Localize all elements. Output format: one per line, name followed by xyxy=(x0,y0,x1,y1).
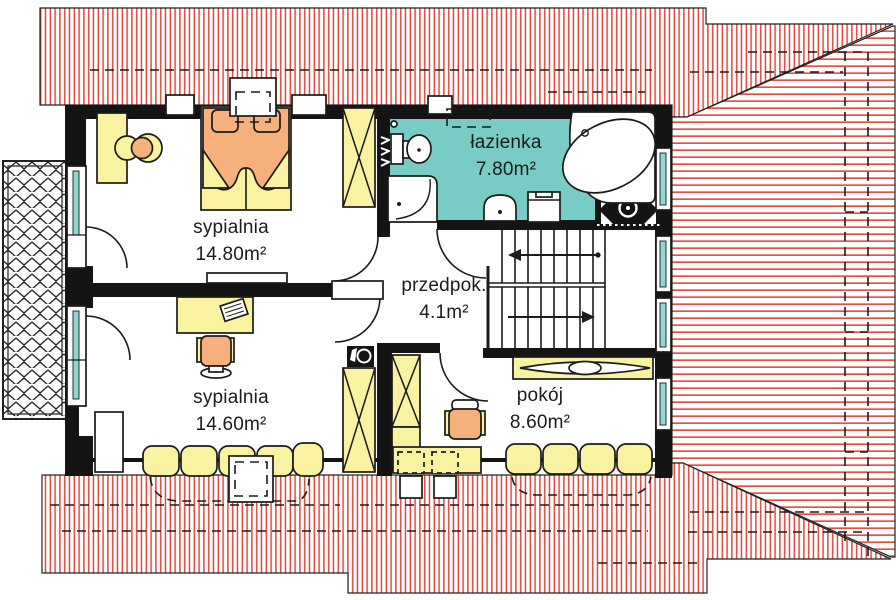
room-label-bedroom2: sypialnia 14.60m² xyxy=(193,384,269,438)
roof-window-tab-2 xyxy=(292,95,326,115)
balcony-window-2 xyxy=(67,306,86,406)
right-window-4 xyxy=(656,378,671,430)
room-name: przedpok. xyxy=(401,272,486,299)
room-area: 8.60m² xyxy=(510,409,570,436)
shower xyxy=(388,176,437,222)
room-name: łazienka xyxy=(470,129,541,156)
sink xyxy=(484,195,516,221)
right-window-3 xyxy=(656,298,671,352)
room-name: sypialnia xyxy=(193,384,269,411)
chair-bedroom2 xyxy=(197,336,234,378)
right-window-2 xyxy=(656,236,671,292)
wardrobe-bedroom1 xyxy=(343,108,375,207)
room-name: pokój xyxy=(510,382,570,409)
room-label-room: pokój 8.60m² xyxy=(510,382,570,436)
room-label-bedroom1: sypialnia 14.80m² xyxy=(193,214,269,268)
washing-machine xyxy=(528,192,560,222)
roof-window-tab-1 xyxy=(166,95,194,115)
room-name: sypialnia xyxy=(193,214,269,241)
sideboard-tv xyxy=(513,357,653,379)
room-label-bathroom: łazienka 7.80m² xyxy=(470,129,541,183)
room-area: 7.80m² xyxy=(470,156,541,183)
room-area: 14.60m² xyxy=(193,411,269,438)
right-window-1 xyxy=(656,148,671,210)
room-label-hallway: przedpok. 4.1m² xyxy=(401,272,486,326)
cabinet-tall xyxy=(95,412,123,472)
skylight-bed xyxy=(230,78,276,122)
door-leaf xyxy=(332,281,383,299)
desk-bedroom2 xyxy=(177,297,253,333)
balcony-window-1 xyxy=(67,166,86,268)
floor-plan: sypialnia 14.80m² łazienka 7.80m² przedp… xyxy=(0,0,896,600)
toilet xyxy=(391,134,431,164)
skylight-bedroom2 xyxy=(229,456,273,502)
room-area: 14.80m² xyxy=(193,241,269,268)
balcony xyxy=(3,161,67,419)
room-area: 4.1m² xyxy=(401,299,486,326)
av-unit-icon xyxy=(347,346,374,367)
drain-dot xyxy=(391,121,397,127)
roof-window-tab-3 xyxy=(428,96,452,114)
shelf xyxy=(207,273,287,283)
double-bed xyxy=(201,106,291,210)
wardrobe-bedroom2 xyxy=(343,368,375,472)
